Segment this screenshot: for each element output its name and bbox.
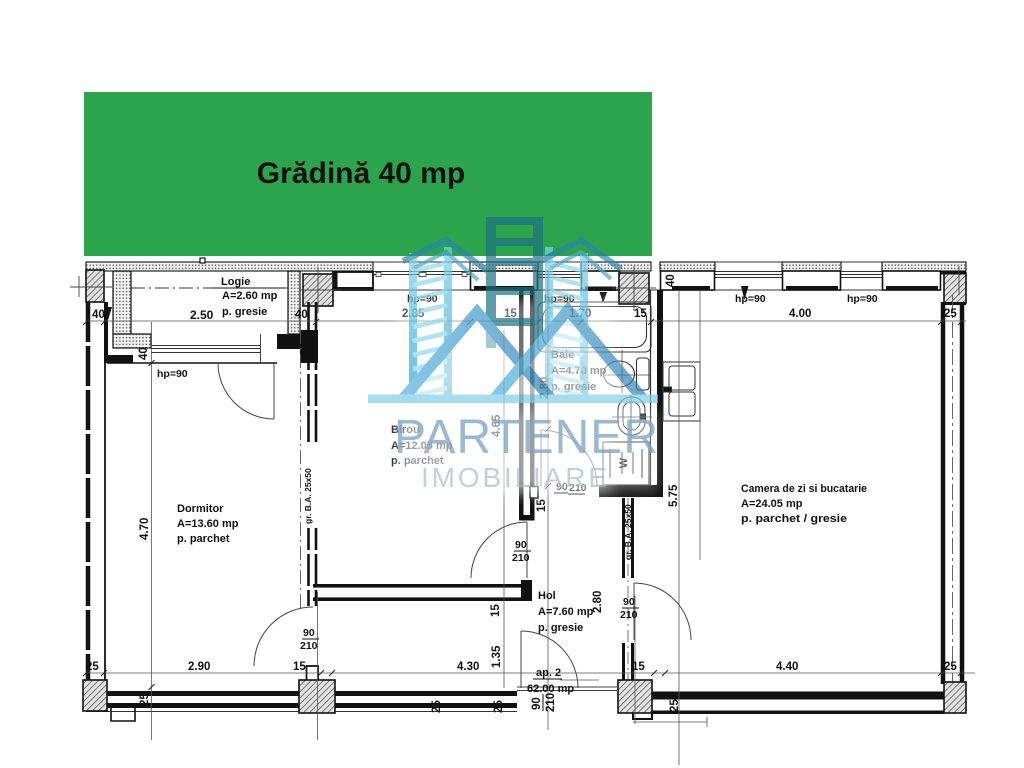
svg-text:gr. B.A. 25x50: gr. B.A. 25x50 bbox=[303, 468, 313, 524]
svg-text:p. gresie: p. gresie bbox=[538, 622, 583, 634]
svg-text:2.80: 2.80 bbox=[592, 591, 604, 613]
svg-text:hp=90: hp=90 bbox=[847, 293, 878, 305]
svg-text:Logie: Logie bbox=[221, 276, 250, 288]
svg-text:A=7.60 mp: A=7.60 mp bbox=[538, 606, 594, 618]
svg-text:210: 210 bbox=[512, 552, 530, 564]
svg-text:A=2.60 mp: A=2.60 mp bbox=[222, 290, 278, 302]
svg-text:ap. 2: ap. 2 bbox=[536, 667, 561, 679]
svg-text:p. parchet: p. parchet bbox=[177, 533, 230, 545]
svg-text:40: 40 bbox=[665, 274, 677, 287]
svg-text:gr. B.A. 25x50: gr. B.A. 25x50 bbox=[623, 504, 633, 560]
svg-text:15: 15 bbox=[536, 499, 548, 512]
svg-text:IMOBILIARE: IMOBILIARE bbox=[421, 462, 607, 493]
svg-text:90: 90 bbox=[623, 596, 635, 608]
svg-text:40: 40 bbox=[92, 309, 105, 321]
svg-text:90: 90 bbox=[515, 539, 527, 551]
svg-text:2.50: 2.50 bbox=[190, 308, 214, 322]
svg-text:25: 25 bbox=[944, 661, 957, 673]
svg-text:25: 25 bbox=[431, 700, 443, 713]
svg-text:hp=90: hp=90 bbox=[157, 368, 188, 380]
svg-text:210: 210 bbox=[300, 640, 318, 652]
svg-text:p. gresie: p. gresie bbox=[222, 306, 267, 318]
svg-text:210: 210 bbox=[545, 693, 557, 712]
svg-text:hp=90: hp=90 bbox=[735, 293, 766, 305]
svg-text:1.35: 1.35 bbox=[491, 645, 503, 668]
svg-text:4.30: 4.30 bbox=[457, 661, 479, 673]
svg-text:15: 15 bbox=[490, 604, 502, 617]
svg-text:A=24.05 mp: A=24.05 mp bbox=[741, 498, 803, 510]
svg-text:PARTENER: PARTENER bbox=[394, 411, 658, 464]
svg-text:25: 25 bbox=[86, 661, 99, 673]
svg-text:Grădină 40 mp: Grădină 40 mp bbox=[257, 157, 465, 190]
svg-text:90: 90 bbox=[303, 627, 315, 639]
svg-text:25: 25 bbox=[139, 693, 151, 706]
svg-text:Hol: Hol bbox=[538, 590, 556, 602]
svg-text:A=13.60 mp: A=13.60 mp bbox=[177, 518, 239, 530]
svg-text:15: 15 bbox=[632, 661, 645, 673]
svg-text:Camera de zi si bucatarie: Camera de zi si bucatarie bbox=[741, 483, 867, 495]
svg-text:40: 40 bbox=[138, 347, 150, 360]
svg-text:Dormitor: Dormitor bbox=[177, 503, 224, 515]
svg-text:15: 15 bbox=[293, 661, 306, 673]
svg-text:25: 25 bbox=[669, 699, 681, 712]
svg-text:5.75: 5.75 bbox=[668, 484, 680, 507]
svg-text:4.00: 4.00 bbox=[789, 308, 811, 320]
svg-text:25: 25 bbox=[493, 700, 505, 713]
svg-text:90: 90 bbox=[531, 697, 543, 710]
svg-text:210: 210 bbox=[620, 609, 638, 621]
svg-text:40: 40 bbox=[295, 309, 308, 321]
svg-text:4.40: 4.40 bbox=[776, 661, 798, 673]
svg-text:25: 25 bbox=[944, 308, 957, 320]
svg-text:15: 15 bbox=[634, 308, 647, 320]
svg-text:4.70: 4.70 bbox=[139, 518, 151, 540]
svg-text:p. parchet / gresie: p. parchet / gresie bbox=[741, 513, 847, 525]
svg-text:2.90: 2.90 bbox=[188, 661, 210, 673]
